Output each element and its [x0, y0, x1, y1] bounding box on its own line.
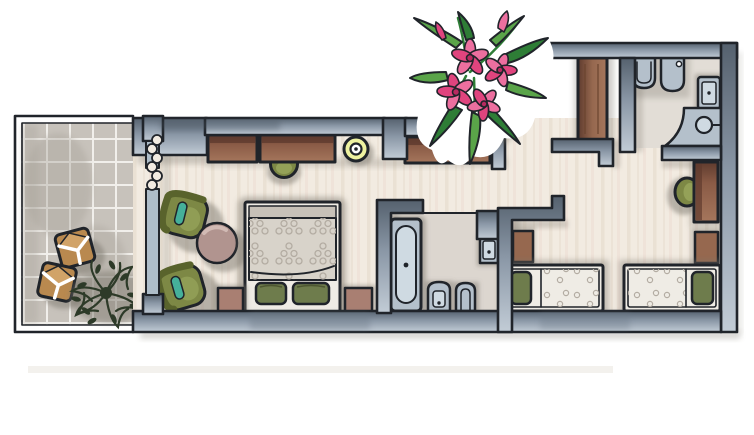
floor-plan-illustration: [0, 0, 754, 435]
wardrobe: [578, 58, 607, 140]
wall-bath-pillar: [477, 211, 498, 239]
door-panel: [146, 189, 159, 295]
round-yellow-stool: [344, 137, 368, 161]
bathtub: [391, 219, 421, 311]
balcony-watercolor-patch: [22, 125, 38, 323]
wall-wc-bottom: [662, 146, 721, 160]
wall-pier: [383, 118, 407, 159]
wall-right: [721, 43, 737, 332]
single-bed-left: [505, 265, 603, 311]
wall-balcony-door-bottom: [143, 294, 163, 314]
twin-nightstand: [513, 231, 533, 262]
bathroom-toilet: [425, 281, 453, 313]
wc-bidet: [661, 58, 684, 91]
single-bed-right: [624, 265, 720, 311]
desk-chair-cushion: [276, 162, 292, 174]
bed-pillow: [692, 272, 713, 304]
room-hallway: [574, 55, 614, 147]
bathroom-bidet: [453, 282, 479, 313]
bathtub-drain: [404, 263, 409, 268]
wall-top-right: [550, 43, 737, 58]
ground-band: [28, 366, 613, 373]
sideboard-left: [208, 135, 257, 162]
wc-washbasin: [695, 74, 723, 112]
wall-wc-left: [620, 58, 635, 152]
floor-plan-canvas: [0, 0, 754, 435]
round-side-table: [197, 223, 237, 263]
bedroom-desk: [694, 162, 718, 222]
sideboard-center: [260, 135, 335, 162]
double-bed: [245, 202, 340, 312]
nightstand: [345, 288, 372, 313]
balcony-door: [146, 135, 162, 295]
cube-stool: [54, 227, 96, 269]
twin-nightstand: [695, 232, 718, 263]
nightstand: [218, 288, 243, 313]
room-balcony: [15, 116, 150, 332]
vanity-basin: [696, 117, 712, 133]
wall-bottom: [133, 311, 721, 332]
bed-pillow: [511, 272, 531, 304]
bed-headband: [249, 206, 336, 218]
